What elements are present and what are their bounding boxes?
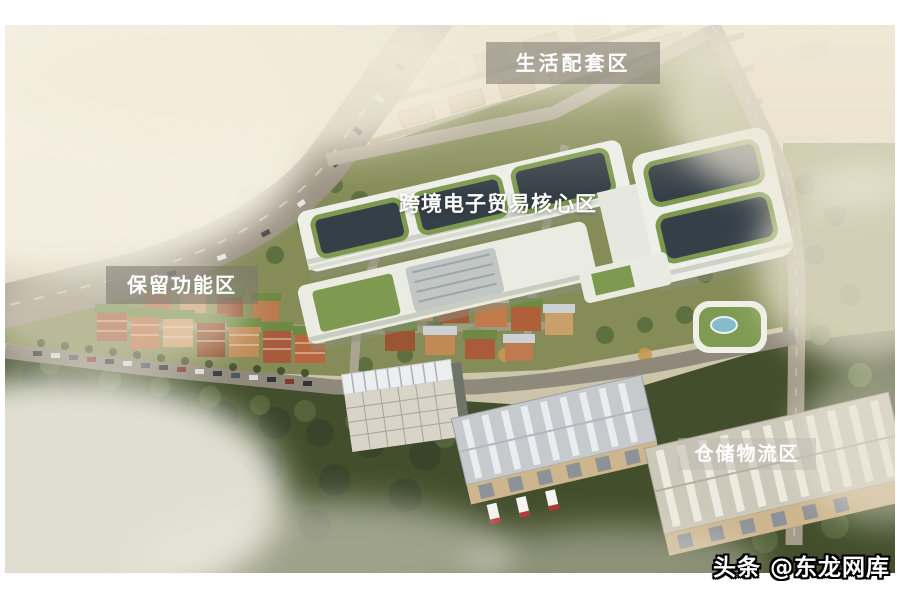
screenshot-canvas: 生活配套区 跨境电子贸易核心区 保留功能区 仓储物流区 头条 @东龙网库 — [0, 0, 900, 593]
pool-pavilion — [693, 301, 767, 353]
watermark-toutiao: 头条 @东龙网库 — [713, 548, 890, 582]
zone-label-living: 生活配套区 — [486, 42, 660, 84]
zone-label-reserved: 保留功能区 — [106, 266, 258, 304]
zone-label-core: 跨境电子贸易核心区 — [399, 188, 597, 218]
zone-label-warehouse: 仓储物流区 — [678, 438, 816, 470]
office-block — [342, 358, 472, 452]
